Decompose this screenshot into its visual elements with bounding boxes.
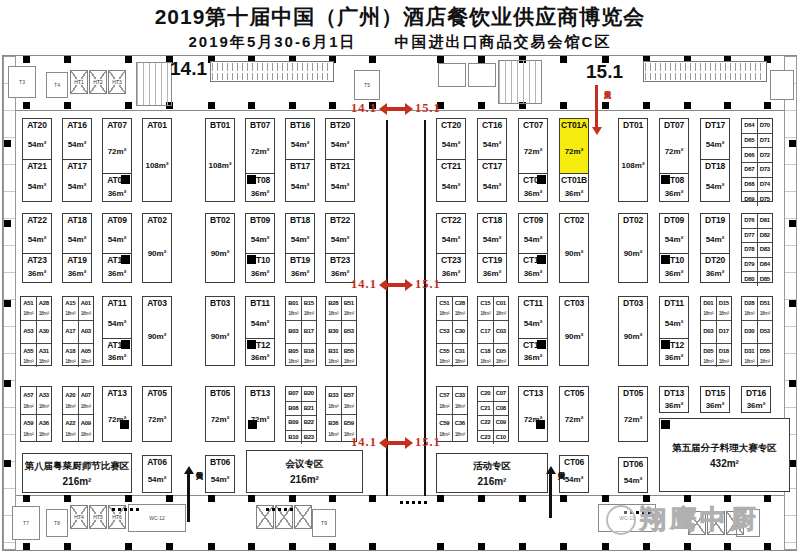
pillar-icon bbox=[764, 495, 771, 502]
booth-id: DT09 bbox=[664, 215, 684, 225]
pillar-icon bbox=[248, 102, 255, 109]
booth-CT01A: CT01A72m² bbox=[559, 118, 589, 174]
pillar-icon bbox=[661, 175, 670, 184]
booth-id: B23 bbox=[304, 434, 314, 441]
booth-id: CT20 bbox=[441, 120, 461, 130]
booth-AT01: AT01108m² bbox=[142, 118, 172, 202]
booth-C20: C20 bbox=[478, 387, 494, 401]
elevator-icon bbox=[294, 505, 312, 529]
watermark-text: 翔鹰中厨 bbox=[640, 502, 760, 537]
booth-size: 36m² bbox=[108, 353, 127, 362]
booth-id: D70 bbox=[760, 122, 770, 129]
pillar-icon bbox=[166, 495, 173, 502]
elevator-label: HT5 bbox=[90, 514, 106, 520]
booth-size: 54m² bbox=[442, 140, 461, 149]
pillar-icon bbox=[23, 495, 30, 502]
booth-id: C20 bbox=[480, 390, 490, 397]
booth-grid-row: B09B22 bbox=[286, 416, 316, 431]
booth-id: BT07 bbox=[250, 120, 270, 130]
booth-id: CT11 bbox=[523, 298, 543, 308]
booth-C57: C5718m² bbox=[437, 387, 453, 414]
zone-label: 第五届分子料理大赛专区 bbox=[672, 442, 777, 455]
booth-grid-row: C20C07 bbox=[478, 387, 508, 402]
booth-id: BT09 bbox=[250, 215, 270, 225]
booth-id: B18 bbox=[304, 348, 314, 355]
expo-date: 2019年5月30-6月1日 bbox=[189, 33, 357, 52]
booth-size: 18m² bbox=[480, 358, 490, 364]
booth-grid-row: A1518m²A0118m² bbox=[63, 297, 93, 321]
booth-size: 90m² bbox=[624, 332, 643, 341]
booth-size: 54m² bbox=[565, 475, 584, 484]
booth-CT09: CT0954m² bbox=[518, 213, 548, 254]
booth-id: C51 bbox=[439, 300, 449, 307]
booth-size: 54m² bbox=[524, 235, 543, 244]
booth-B09: B09 bbox=[286, 416, 302, 430]
booth-id: AT06 bbox=[147, 457, 166, 467]
booth-DT01: DT01108m² bbox=[618, 118, 648, 202]
booth-size: 54m² bbox=[108, 235, 127, 244]
booth-size: 90m² bbox=[565, 332, 584, 341]
booth-A33: A3318m² bbox=[37, 387, 52, 414]
booth-size: 54m² bbox=[442, 182, 461, 191]
booth-grid-row: D64D70 bbox=[742, 119, 772, 134]
booth-grid-row: A5918m²A3618m² bbox=[21, 415, 51, 442]
booth-D01: D0118m² bbox=[701, 297, 717, 320]
booth-id: B33 bbox=[328, 392, 338, 399]
booth-C55: C5518m² bbox=[437, 344, 453, 367]
booth-id: DT20 bbox=[705, 255, 725, 265]
pillar-icon bbox=[537, 340, 546, 349]
booth-D75: D75 bbox=[758, 192, 773, 206]
booth-A31: A3118m² bbox=[37, 344, 52, 367]
booth-size: 36m² bbox=[665, 401, 684, 410]
booth-DT08: DT0836m² bbox=[659, 173, 689, 202]
booth-DT20: DT2036m² bbox=[700, 253, 730, 283]
booth-id: D15 bbox=[719, 300, 729, 307]
booth-DT11: DT1154m² bbox=[659, 296, 689, 339]
booth-id: B36 bbox=[328, 420, 338, 427]
booth-grid-row: A2018m²A0718m² bbox=[63, 387, 93, 415]
pillar-dots bbox=[112, 508, 139, 511]
booth-id: A59 bbox=[23, 420, 33, 427]
pillar-icon bbox=[64, 495, 71, 502]
pillar-icon bbox=[247, 175, 256, 184]
booth-grid-row: D78D83 bbox=[742, 243, 772, 258]
booth-id: D82 bbox=[760, 232, 770, 239]
pillar-icon bbox=[684, 495, 691, 502]
booth-BT17: BT1754m² bbox=[285, 159, 315, 202]
marker-label-right: 15.1 bbox=[415, 101, 441, 116]
booth-id: D79 bbox=[744, 261, 754, 268]
booth-id: CT23 bbox=[441, 255, 461, 265]
booth-grid-row: D65D71 bbox=[742, 134, 772, 149]
elevator-icon: HT1 bbox=[70, 70, 88, 94]
booth-D03: D03 bbox=[701, 321, 717, 344]
booth-size: 54m² bbox=[331, 140, 350, 149]
booth-C31: C3118m² bbox=[453, 344, 468, 367]
booth-size: 72m² bbox=[108, 147, 127, 156]
booth-grid: D64D70D65D71D66D72D67D73D68D74D69D75 bbox=[741, 118, 773, 202]
elevator-label: HT1 bbox=[71, 79, 87, 85]
booth-AT06: AT0654m² bbox=[142, 455, 172, 493]
booth-size: 36m² bbox=[483, 269, 502, 278]
booth-B21: B21 bbox=[302, 402, 317, 416]
zone-label: 活动专区 bbox=[473, 460, 511, 473]
booth-size: 18m² bbox=[455, 358, 465, 364]
booth-B05: B0518m² bbox=[286, 344, 302, 367]
booth-size: 18m² bbox=[328, 310, 338, 316]
booth-A18: A1818m² bbox=[63, 344, 79, 367]
service-room bbox=[498, 60, 542, 104]
booth-id: CT01B bbox=[561, 175, 587, 185]
booth-id: B15 bbox=[304, 300, 314, 307]
booth-BT13: BT1372m² bbox=[245, 386, 275, 442]
booth-size: 18m² bbox=[304, 358, 314, 364]
booth-id: C09 bbox=[496, 419, 506, 426]
booth-size: 18m² bbox=[328, 358, 338, 364]
booth-grid-row: A5518m²A3118m² bbox=[21, 344, 51, 367]
hall-connector-marker: 14.115.1 bbox=[351, 435, 441, 450]
booth-D05: D0518m² bbox=[701, 344, 717, 367]
booth-DT03: DT0390m² bbox=[618, 296, 648, 366]
watermark: 翔鹰中厨 bbox=[606, 502, 760, 537]
booth-id: D28 bbox=[744, 300, 754, 307]
pillar-icon bbox=[437, 56, 444, 63]
booth-size: 36m² bbox=[565, 189, 584, 198]
service-room bbox=[770, 70, 794, 100]
booth-id: DT06 bbox=[623, 459, 643, 469]
booth-B36: B3618m² bbox=[326, 415, 342, 442]
booth-id: C28 bbox=[455, 300, 465, 307]
booth-id: C10 bbox=[496, 434, 506, 441]
service-room: T4 bbox=[46, 72, 68, 98]
booth-D31: D3118m² bbox=[742, 344, 758, 367]
booth-DT09: DT0954m² bbox=[659, 213, 689, 254]
main-entrance-label: 观众主入口 bbox=[603, 85, 612, 135]
booth-grid-row: C21C08 bbox=[478, 402, 508, 417]
booth-grid-row: B30B53 bbox=[326, 321, 356, 345]
booth-size: 18m² bbox=[65, 403, 75, 409]
booth-CT20: CT2054m² bbox=[436, 118, 466, 160]
booth-id: DT02 bbox=[623, 215, 643, 225]
booth-D68: D68 bbox=[742, 178, 758, 192]
booth-id: D75 bbox=[760, 196, 770, 203]
booth-grid-row: B3118m²B5518m² bbox=[326, 344, 356, 367]
booth-id: DT07 bbox=[664, 120, 684, 130]
booth-id: D83 bbox=[760, 246, 770, 253]
booth-size: 36m² bbox=[524, 189, 543, 198]
booth-id: CT06 bbox=[564, 457, 584, 467]
booth-A01: A0118m² bbox=[79, 297, 94, 320]
booth-AT23: AT2336m² bbox=[22, 253, 52, 283]
booth-grid-row: A17A03 bbox=[63, 321, 93, 345]
booth-size: 90m² bbox=[211, 249, 230, 258]
booth-size: 18m² bbox=[760, 358, 770, 364]
marker-label-left: 14.1 bbox=[351, 277, 377, 292]
booth-size: 18m² bbox=[23, 310, 33, 316]
booth-CT02: CT0290m² bbox=[559, 213, 589, 283]
booth-size: 72m² bbox=[148, 415, 167, 424]
booth-size: 72m² bbox=[665, 147, 684, 156]
booth-id: CT13 bbox=[523, 388, 543, 398]
booth-D65: D65 bbox=[742, 134, 758, 148]
booth-size: 36m² bbox=[108, 189, 127, 198]
booth-id: CT16 bbox=[482, 120, 502, 130]
booth-id: BT03 bbox=[210, 298, 230, 308]
booth-size: 36m² bbox=[251, 269, 270, 278]
booth-id: C17 bbox=[480, 328, 490, 335]
booth-AT13: AT1372m² bbox=[102, 386, 132, 442]
booth-size: 18m² bbox=[760, 310, 770, 316]
booth-D53: D53 bbox=[758, 321, 773, 344]
escalator-icon bbox=[643, 61, 767, 82]
booth-id: D76 bbox=[744, 217, 754, 224]
booth-size: 54m² bbox=[211, 475, 230, 484]
booth-id: CT05 bbox=[564, 388, 584, 398]
booth-BT09: BT0954m² bbox=[245, 213, 275, 254]
booth-id: AT13 bbox=[107, 388, 126, 398]
pillar-icon bbox=[560, 102, 567, 109]
booth-id: A03 bbox=[81, 328, 91, 335]
pillar-icon bbox=[684, 102, 691, 109]
booth-AT12: AT1236m² bbox=[102, 338, 132, 366]
elevator-label: HT3 bbox=[109, 79, 125, 85]
pillar-icon bbox=[519, 543, 526, 550]
service-room bbox=[468, 63, 496, 87]
booth-B57: B5718m² bbox=[342, 387, 357, 414]
booth-grid-row: D2818m²D5118m² bbox=[742, 297, 772, 321]
booth-D67: D67 bbox=[742, 163, 758, 177]
elevator-icon: HT2 bbox=[89, 70, 107, 94]
booth-grid-row: C23C10 bbox=[478, 431, 508, 445]
booth-D80: D80 bbox=[742, 272, 758, 286]
booth-grid-row: B2818m²B5118m² bbox=[326, 297, 356, 321]
zone-label: 第八届粤菜厨师节比赛区 bbox=[25, 460, 130, 473]
booth-B01: B0118m² bbox=[286, 297, 302, 320]
booth-size: 72m² bbox=[565, 415, 584, 424]
booth-id: BT11 bbox=[250, 298, 270, 308]
booth-A53: A53 bbox=[21, 321, 37, 344]
booth-id: D18 bbox=[719, 348, 729, 355]
booth-id: CT22 bbox=[441, 215, 461, 225]
booth-id: BT18 bbox=[290, 215, 310, 225]
mascot-logo-icon bbox=[606, 505, 636, 535]
booth-size: 54m² bbox=[706, 235, 725, 244]
booth-AT22: AT2254m² bbox=[22, 213, 52, 254]
booth-size: 54m² bbox=[291, 140, 310, 149]
booth-id: A18 bbox=[65, 348, 75, 355]
booth-D84: D84 bbox=[758, 258, 773, 272]
elevator-label: HT6 bbox=[109, 514, 125, 520]
booth-id: D71 bbox=[760, 137, 770, 144]
pillar-icon bbox=[121, 340, 130, 349]
booth-size: 18m² bbox=[23, 431, 33, 437]
booth-A22: A2218m² bbox=[63, 415, 79, 442]
pillar-icon bbox=[602, 543, 609, 550]
zone-size: 216m² bbox=[290, 474, 319, 485]
booth-D78: D78 bbox=[742, 243, 758, 257]
booth-id: BT13 bbox=[250, 388, 270, 398]
booth-BT03: BT0390m² bbox=[205, 296, 235, 366]
pillar-icon bbox=[437, 543, 444, 550]
booth-size: 18m² bbox=[39, 358, 49, 364]
booth-id: B30 bbox=[328, 328, 338, 335]
zone-label: 会议专区 bbox=[286, 458, 324, 471]
booth-C05: C0518m² bbox=[494, 344, 509, 367]
pillar-icon bbox=[724, 543, 731, 550]
service-room: T7 bbox=[12, 506, 40, 540]
booth-grid-row: B0518m²B1818m² bbox=[286, 344, 316, 367]
booth-id: B17 bbox=[304, 328, 314, 335]
booth-size: 18m² bbox=[439, 403, 449, 409]
booth-DT17: DT1754m² bbox=[700, 118, 730, 160]
booth-BT16: BT1654m² bbox=[285, 118, 315, 160]
pillar-icon bbox=[478, 543, 485, 550]
pillar-icon bbox=[536, 420, 545, 429]
pillar-icon bbox=[289, 495, 296, 502]
booth-id: AT22 bbox=[27, 215, 46, 225]
booth-A09: A0918m² bbox=[79, 415, 94, 442]
booth-grid-row: D79D84 bbox=[742, 258, 772, 273]
booth-size: 18m² bbox=[455, 431, 465, 437]
booth-C21: C21 bbox=[478, 402, 494, 416]
elevator-icon: HT5 bbox=[89, 505, 107, 529]
booth-size: 54m² bbox=[706, 182, 725, 191]
booth-size: 90m² bbox=[148, 332, 167, 341]
booth-B20: B20 bbox=[302, 387, 317, 401]
booth-size: 72m² bbox=[251, 147, 270, 156]
pillar-icon bbox=[121, 255, 130, 264]
pillar-icon bbox=[125, 56, 132, 63]
booth-grid-row: C5718m²C3318m² bbox=[437, 387, 467, 415]
booth-id: C57 bbox=[439, 392, 449, 399]
booth-grid-row: D77D82 bbox=[742, 229, 772, 244]
frame-line-h bbox=[2, 495, 797, 496]
pillar-icon bbox=[64, 56, 71, 63]
booth-id: CT02 bbox=[564, 215, 584, 225]
hall-label-left: 14.1 bbox=[170, 58, 207, 80]
booth-size: 18m² bbox=[65, 358, 75, 364]
booth-grid: B3318m²B5718m²B3618m²B5918m² bbox=[325, 386, 357, 442]
booth-id: A33 bbox=[39, 392, 49, 399]
booth-A59: A5918m² bbox=[21, 415, 37, 442]
booth-C01: C0118m² bbox=[494, 297, 509, 320]
booth-grid-row: D66D72 bbox=[742, 148, 772, 163]
booth-B07: B07 bbox=[286, 387, 302, 401]
booth-B15: B1518m² bbox=[302, 297, 317, 320]
booth-id: D05 bbox=[703, 348, 713, 355]
booth-AT17: AT1754m² bbox=[62, 159, 92, 202]
booth-size: 72m² bbox=[211, 415, 230, 424]
arrow-down-icon bbox=[592, 85, 602, 135]
pillar-icon bbox=[369, 543, 376, 550]
pillar-icon bbox=[4, 300, 11, 307]
pillar-icon bbox=[764, 543, 771, 550]
pillar-icon bbox=[329, 495, 336, 502]
pillar-icon bbox=[478, 495, 485, 502]
booth-size: 18m² bbox=[480, 310, 490, 316]
booth-D51: D5118m² bbox=[758, 297, 773, 320]
pillar-icon bbox=[537, 175, 546, 184]
expo-title: 2019第十届中国（广州）酒店餐饮业供应商博览会 bbox=[0, 3, 800, 31]
booth-grid: D0118m²D1518m²D03D17D0518m²D1818m² bbox=[700, 296, 732, 366]
booth-id: B05 bbox=[288, 348, 298, 355]
booth-size: 18m² bbox=[455, 310, 465, 316]
booth-id: BT17 bbox=[290, 161, 310, 171]
service-room: T8 bbox=[46, 509, 68, 537]
booth-AT10: AT1036m² bbox=[102, 253, 132, 283]
booth-BT18: BT1854m² bbox=[285, 213, 315, 254]
booth-size: 36m² bbox=[331, 269, 350, 278]
booth-size: 54m² bbox=[28, 140, 47, 149]
booth-id: C36 bbox=[455, 420, 465, 427]
booth-size: 36m² bbox=[28, 269, 47, 278]
booth-id: AT21 bbox=[27, 161, 46, 171]
booth-grid: B0118m²B1518m²B03B17B0518m²B1818m² bbox=[285, 296, 317, 366]
booth-id: C01 bbox=[496, 300, 506, 307]
frame-line-h bbox=[2, 55, 797, 56]
booth-C28: C2818m² bbox=[453, 297, 468, 320]
booth-D17: D17 bbox=[717, 321, 732, 344]
booth-id: DT13 bbox=[664, 388, 684, 398]
booth-id: D51 bbox=[760, 300, 770, 307]
booth-size: 54m² bbox=[442, 235, 461, 244]
expo-venue: 中国进出口商品交易会馆C区 bbox=[395, 33, 612, 52]
pillar-icon bbox=[519, 495, 526, 502]
hall-label-right: 15.1 bbox=[586, 61, 623, 83]
elevator-icon: HT3 bbox=[108, 70, 126, 94]
booth-CT17: CT1754m² bbox=[477, 159, 507, 202]
booth-id: C23 bbox=[480, 434, 490, 441]
marker-label-left: 14.1 bbox=[351, 101, 377, 116]
booth-AT21: AT2154m² bbox=[22, 159, 52, 202]
booth-id: C08 bbox=[496, 405, 506, 412]
pillar-icon bbox=[789, 140, 796, 147]
booth-id: D72 bbox=[760, 152, 770, 159]
hall-connector-marker: 14.115.1 bbox=[351, 277, 441, 292]
pillar-icon bbox=[4, 220, 11, 227]
booth-size: 90m² bbox=[148, 249, 167, 258]
booth-C17: C17 bbox=[478, 321, 494, 344]
booth-size: 18m² bbox=[288, 310, 298, 316]
booth-size: 36m² bbox=[706, 401, 725, 410]
booth-A07: A0718m² bbox=[79, 387, 94, 414]
pillar-icon bbox=[369, 56, 376, 63]
booth-id: D30 bbox=[744, 328, 754, 335]
booth-B17: B17 bbox=[302, 321, 317, 344]
booth-id: B09 bbox=[288, 419, 298, 426]
booth-grid-row: D69D75 bbox=[742, 192, 772, 206]
booth-AT03: AT0390m² bbox=[142, 296, 172, 366]
elevator-label: HT2 bbox=[90, 79, 106, 85]
booth-DT12: DT1236m² bbox=[659, 338, 689, 366]
booth-size: 18m² bbox=[719, 310, 729, 316]
booth-size: 18m² bbox=[344, 310, 354, 316]
pillar-icon bbox=[478, 56, 485, 63]
booth-size: 18m² bbox=[288, 358, 298, 364]
escalator-icon bbox=[210, 61, 334, 82]
booth-id: CT09 bbox=[523, 215, 543, 225]
booth-id: BT19 bbox=[290, 255, 310, 265]
booth-DT10: DT1036m² bbox=[659, 253, 689, 283]
booth-size: 54m² bbox=[291, 235, 310, 244]
booth-size: 54m² bbox=[28, 235, 47, 244]
booth-grid-row: D67D73 bbox=[742, 163, 772, 178]
booth-size: 18m² bbox=[719, 358, 729, 364]
booth-id: B51 bbox=[344, 300, 354, 307]
booth-grid: C1518m²C0118m²C17C03C1818m²C0518m² bbox=[477, 296, 509, 366]
booth-CT18: CT1854m² bbox=[477, 213, 507, 254]
